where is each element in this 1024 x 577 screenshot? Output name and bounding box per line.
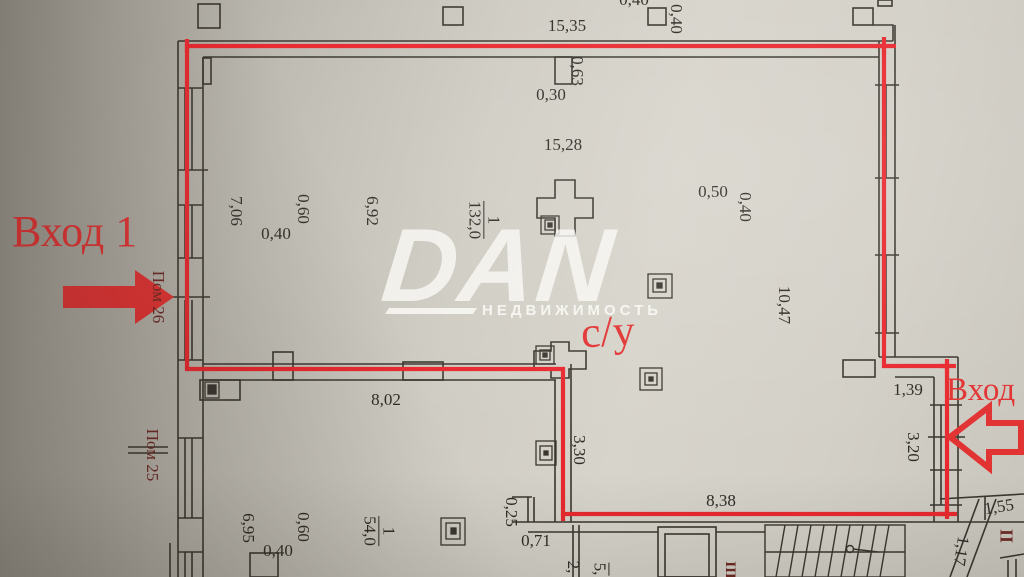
dim-pilaster-h: 0,63 xyxy=(568,56,586,86)
dim-col3-h: 0,40 xyxy=(263,542,293,560)
dim-col1-h: 0,40 xyxy=(261,225,291,243)
stairwell3-label: III xyxy=(721,561,737,577)
dim-pilaster-w: 0,30 xyxy=(536,86,566,104)
entrance2-label: Вход 2 xyxy=(946,374,1024,407)
room-label-lower: 1 54,0 xyxy=(361,516,398,546)
bathroom-label: с/у xyxy=(580,309,636,356)
room-main-area: 132,0 xyxy=(466,201,485,239)
floor-plan-photo: DAN НЕДВИЖИМОСТЬ 15,35 0,40 0,40 0,63 0,… xyxy=(0,0,1024,577)
room-lower-number: 1 xyxy=(380,516,398,546)
dim-col2-h: 0,40 xyxy=(736,192,754,222)
dim-left-room-w: 7,06 xyxy=(227,196,245,226)
dim-lobby-d: 1,17 xyxy=(950,535,972,567)
dim-notch-b: 0,71 xyxy=(521,532,551,550)
dim-col3-w: 0,60 xyxy=(294,512,312,542)
dim-top-col-h: 0,40 xyxy=(667,4,685,34)
dim-lower-left-w: 6,95 xyxy=(239,513,257,543)
room-lower-area: 54,0 xyxy=(361,516,380,546)
dim-top-inner: 15,28 xyxy=(544,136,582,154)
dim-inner-depth: 3,30 xyxy=(570,435,588,465)
room-label-main: 1 132,0 xyxy=(466,201,503,239)
dim-lower-room-w: 8,02 xyxy=(371,391,401,409)
dim-top-col-w: 0,40 xyxy=(619,0,649,9)
room-main-number: 1 xyxy=(485,201,503,239)
dim-col2-w: 0,50 xyxy=(698,183,728,201)
dim-right-depth: 10,47 xyxy=(775,286,793,324)
dim-mid-room-w: 6,92 xyxy=(363,196,381,226)
dan-watermark-subtitle: НЕДВИЖИМОСТЬ xyxy=(482,302,662,319)
dim-jog-w: 1,39 xyxy=(893,381,923,399)
staircase xyxy=(765,525,905,577)
dim-part-b: 5, xyxy=(591,563,610,576)
dim-bottom-w: 8,38 xyxy=(706,492,736,510)
dim-shop-window: 3,20 xyxy=(904,432,922,462)
entrance1-label: Вход 1 xyxy=(12,210,137,254)
dan-watermark-rule xyxy=(385,308,477,314)
premise25-label: Пом 25 xyxy=(143,429,161,481)
dim-col1-w: 0,60 xyxy=(294,194,312,224)
stairwell2-label: II xyxy=(997,529,1016,543)
dim-part-a: 2, xyxy=(564,561,582,574)
dim-notch-a: 0,25 xyxy=(502,497,520,527)
premise26-label: Пом 26 xyxy=(149,271,167,323)
dim-top-outer: 15,35 xyxy=(548,17,586,35)
